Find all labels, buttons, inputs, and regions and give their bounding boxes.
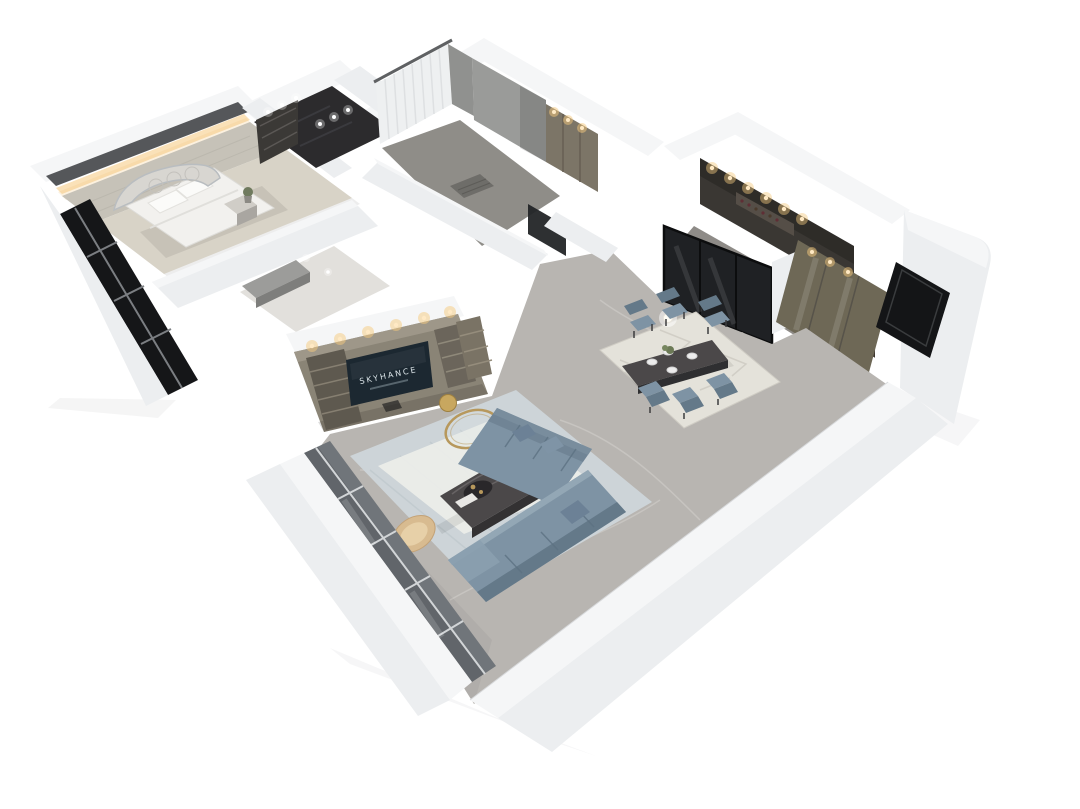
downlight [346,108,350,112]
downlight [366,330,370,334]
downlight [338,337,342,341]
downlight [746,186,750,190]
bottle [775,218,778,221]
downlight [710,166,714,170]
downlight [332,115,336,119]
flower-centerpiece [662,345,668,351]
downlight [280,103,284,107]
downlight [422,316,426,320]
potted-plant [243,187,253,197]
floorplan-render: SKYHANCE [0,0,1080,809]
plate [647,359,657,365]
bottle [747,203,750,206]
downlight [326,270,330,274]
downlight [846,270,850,274]
bottle [761,211,764,214]
downlight [448,310,452,314]
downlight [318,122,322,126]
plate [667,367,677,373]
wall-shade [520,86,546,162]
downlight [304,256,308,260]
bottle [740,199,743,202]
downlight [810,250,814,254]
downlight [800,217,804,221]
downlight [782,207,786,211]
downlight [552,110,556,114]
downlight [828,260,832,264]
bottle [754,207,757,210]
downlight [874,252,878,256]
downlight [266,110,270,114]
plant-pot [244,196,252,203]
downlight [580,126,584,130]
gold-stool [440,395,457,412]
downlight [310,344,314,348]
plate [687,353,697,359]
shadow-left [48,398,176,418]
downlight [860,244,864,248]
bottle [768,214,771,217]
downlight [566,118,570,122]
tray-decor [471,485,476,490]
downlight [394,323,398,327]
downlight [294,96,298,100]
downlight [764,196,768,200]
tray-decor [479,490,483,494]
floorplan-svg: SKYHANCE [0,0,1080,809]
downlight [728,176,732,180]
